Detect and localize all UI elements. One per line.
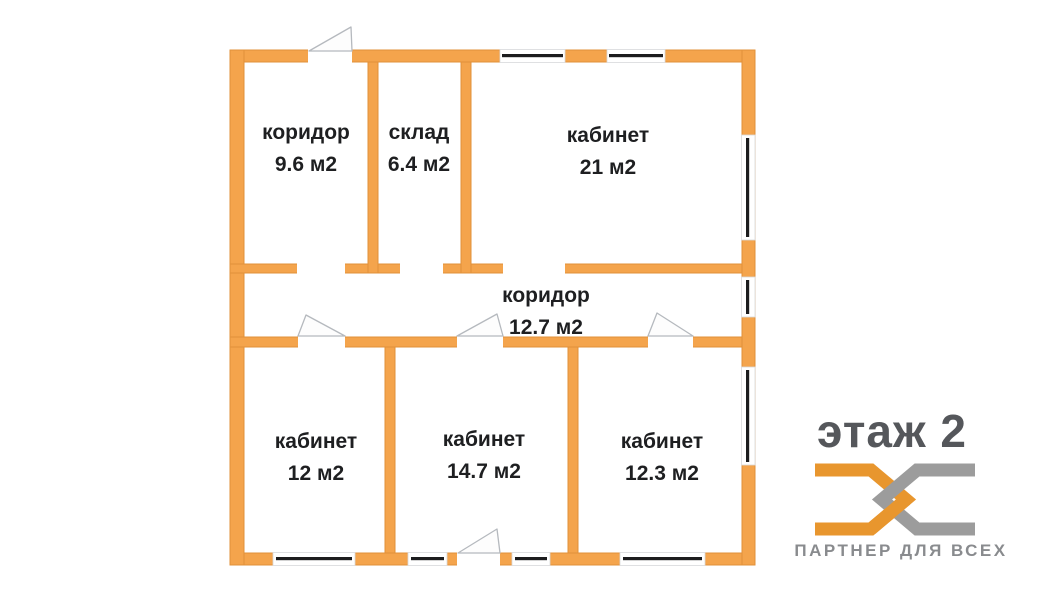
room-area: 14.7 м2 [443, 456, 525, 488]
partner-logo-icon [813, 462, 977, 538]
room-area: 12.3 м2 [621, 458, 703, 490]
room-name: коридор [502, 280, 590, 312]
glass-top-1 [502, 54, 563, 57]
wall-left [230, 50, 244, 565]
room-label-kabinet-21: кабинет 21 м2 [567, 120, 649, 184]
room-name: кабинет [621, 426, 703, 458]
room-area: 12 м2 [275, 458, 357, 490]
opening-sklad [400, 263, 443, 275]
floor-plan-page: коридор 9.6 м2 склад 6.4 м2 кабинет 21 м… [0, 0, 1050, 600]
brand-tagline: ПАРТНЕР ДЛЯ ВСЕХ [794, 541, 1007, 561]
floor-number-label: этаж 2 [817, 404, 967, 458]
room-area: 6.4 м2 [388, 149, 450, 181]
door-swing-kabinet147 [457, 314, 503, 336]
opening-kabinet21 [503, 263, 565, 275]
door-opening-bottom [457, 552, 500, 567]
glass-bottom-2 [411, 557, 444, 560]
room-label-kabinet-147: кабинет 14.7 м2 [443, 424, 525, 488]
wall-divider-sklad-kabinet21 [461, 62, 471, 273]
glass-right-2 [746, 280, 749, 314]
wall-divider-kabinet147-kabinet123 [568, 347, 578, 553]
glass-top-2 [609, 54, 663, 57]
logo-orange-chevron [815, 470, 906, 529]
glass-bottom-1 [276, 557, 352, 560]
room-name: коридор [262, 117, 350, 149]
room-label-kabinet-12: кабинет 12 м2 [275, 426, 357, 490]
room-name: кабинет [567, 120, 649, 152]
room-label-kabinet-123: кабинет 12.3 м2 [621, 426, 703, 490]
room-label-koridor-96: коридор 9.6 м2 [262, 117, 350, 181]
room-name: склад [388, 117, 450, 149]
wall-divider-koridor-sklad [368, 62, 378, 273]
room-label-koridor-127: коридор 12.7 м2 [502, 280, 590, 344]
room-area: 21 м2 [567, 152, 649, 184]
door-swing-kabinet123 [648, 313, 693, 336]
glass-right-3 [746, 370, 749, 462]
opening-koridor96 [297, 263, 345, 275]
wall-divider-kabinet12-kabinet147 [385, 347, 395, 553]
glass-bottom-4 [623, 557, 702, 560]
room-area: 12.7 м2 [502, 312, 590, 344]
room-label-sklad: склад 6.4 м2 [388, 117, 450, 181]
door-opening-kabinet12 [298, 336, 345, 349]
door-swing-entrance [309, 27, 352, 51]
door-swing-kabinet12 [298, 315, 345, 336]
glass-bottom-3 [515, 557, 547, 560]
room-area: 9.6 м2 [262, 149, 350, 181]
door-swing-bottom [458, 529, 500, 553]
door-opening-kabinet123 [648, 336, 693, 349]
room-name: кабинет [275, 426, 357, 458]
door-opening-kabinet147 [457, 336, 503, 349]
glass-right-1 [746, 138, 749, 237]
room-name: кабинет [443, 424, 525, 456]
